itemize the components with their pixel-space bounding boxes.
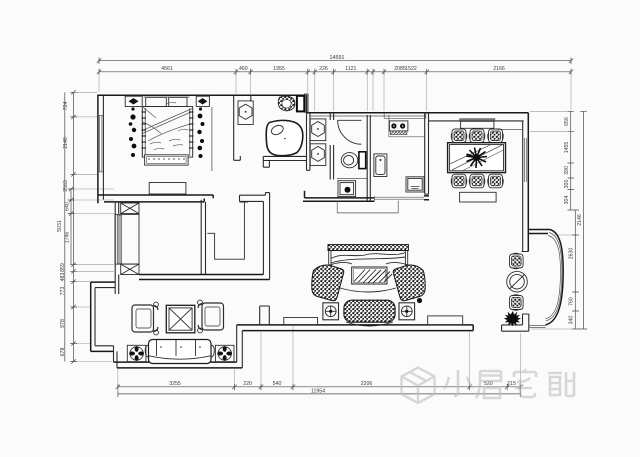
svg-text:540: 540 [273, 381, 282, 387]
svg-text:215: 215 [507, 381, 516, 387]
svg-text:4561: 4561 [161, 66, 173, 72]
svg-text:5031: 5031 [57, 220, 63, 232]
svg-text:859: 859 [60, 263, 66, 272]
svg-text:2630: 2630 [569, 248, 575, 260]
svg-text:2146: 2146 [577, 214, 583, 226]
svg-text:2563: 2563 [63, 180, 69, 192]
svg-text:2085: 2085 [394, 66, 406, 72]
svg-text:724: 724 [63, 102, 69, 111]
svg-text:2206: 2206 [361, 381, 373, 387]
svg-text:390: 390 [564, 166, 570, 175]
svg-text:2166: 2166 [493, 66, 505, 72]
svg-text:220: 220 [243, 381, 252, 387]
svg-text:1455: 1455 [564, 142, 570, 154]
svg-text:678: 678 [60, 348, 66, 357]
svg-text:640: 640 [65, 202, 71, 211]
svg-text:978: 978 [60, 319, 66, 328]
svg-text:300: 300 [564, 180, 570, 189]
svg-text:340: 340 [569, 316, 575, 325]
svg-text:656: 656 [564, 117, 570, 126]
svg-text:483: 483 [60, 273, 66, 282]
svg-text:226: 226 [319, 66, 328, 72]
svg-text:1121: 1121 [345, 66, 356, 72]
svg-text:11954: 11954 [311, 388, 325, 394]
svg-text:14591: 14591 [330, 55, 345, 61]
svg-text:760: 760 [569, 297, 575, 306]
svg-text:1746: 1746 [65, 232, 71, 244]
svg-text:1955: 1955 [273, 66, 285, 72]
svg-text:2140: 2140 [63, 137, 69, 149]
svg-text:3255: 3255 [169, 381, 181, 387]
svg-text:304: 304 [564, 196, 570, 205]
svg-text:1522: 1522 [405, 66, 417, 72]
svg-text:460: 460 [239, 66, 248, 72]
svg-text:773: 773 [60, 287, 66, 296]
